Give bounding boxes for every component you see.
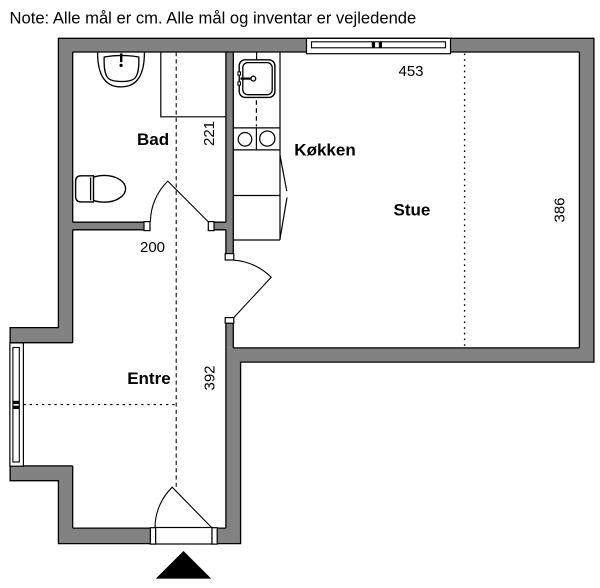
svg-text:Køkken: Køkken	[294, 141, 355, 160]
svg-text:453: 453	[398, 63, 423, 80]
svg-text:Note: Alle mål er cm. Alle mål: Note: Alle mål er cm. Alle mål og invent…	[10, 9, 417, 28]
svg-text:221: 221	[201, 121, 218, 146]
svg-text:Bad: Bad	[137, 130, 169, 149]
svg-text:200: 200	[140, 239, 165, 256]
svg-text:Stue: Stue	[394, 201, 431, 220]
svg-text:386: 386	[551, 197, 568, 222]
svg-text:Entre: Entre	[127, 369, 170, 388]
svg-text:392: 392	[201, 365, 218, 390]
